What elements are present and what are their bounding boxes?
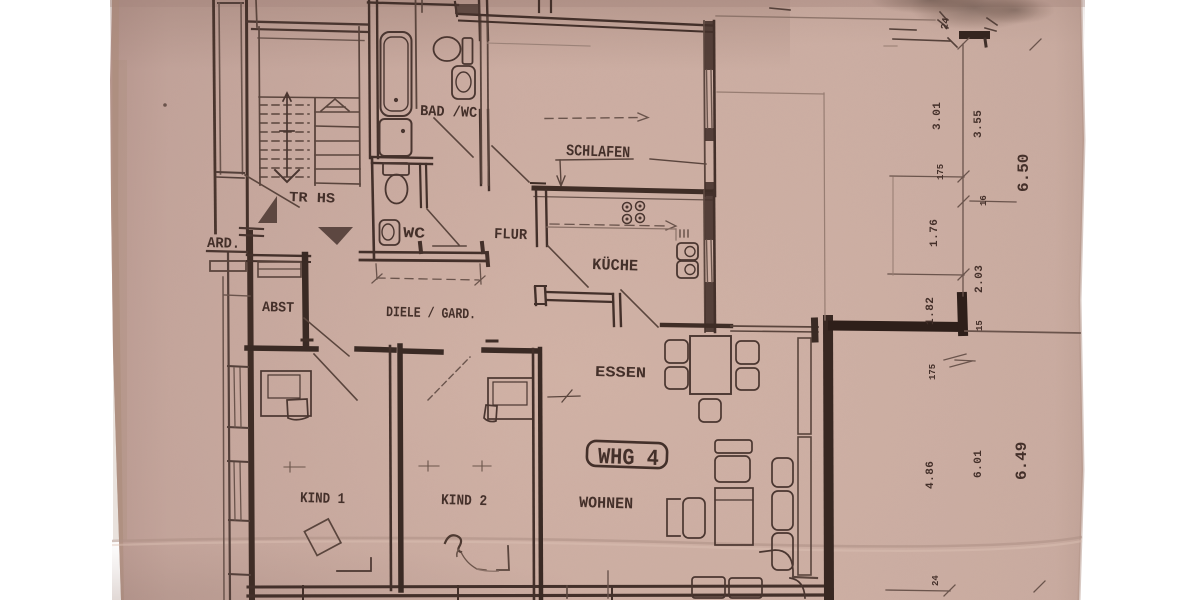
svg-text:KÜCHE: KÜCHE <box>592 255 639 276</box>
svg-text:15: 15 <box>975 320 985 331</box>
svg-text:3.55: 3.55 <box>973 110 985 138</box>
svg-text:2.03: 2.03 <box>974 265 986 293</box>
svg-text:ABST: ABST <box>262 300 295 317</box>
svg-text:3.01: 3.01 <box>932 102 944 130</box>
svg-text:6.01: 6.01 <box>973 450 985 478</box>
svg-text:175: 175 <box>936 164 946 180</box>
svg-text:DIELE / GARD.: DIELE / GARD. <box>386 305 476 323</box>
svg-text:6.50: 6.50 <box>1015 154 1033 192</box>
svg-text:WC: WC <box>403 225 426 243</box>
svg-text:1.82: 1.82 <box>925 297 937 325</box>
svg-text:ESSEN: ESSEN <box>595 364 646 382</box>
svg-text:24: 24 <box>940 17 953 31</box>
svg-text:WOHNEN: WOHNEN <box>579 494 633 513</box>
svg-text:WHG 4: WHG 4 <box>597 444 659 472</box>
svg-text:KIND 2: KIND 2 <box>441 492 487 510</box>
svg-text:24: 24 <box>931 575 941 586</box>
svg-text:4.86: 4.86 <box>925 461 937 489</box>
svg-text:1.76: 1.76 <box>929 219 941 247</box>
svg-text:16: 16 <box>979 195 989 206</box>
svg-text:6.49: 6.49 <box>1013 442 1031 480</box>
svg-text:KIND 1: KIND 1 <box>300 490 345 508</box>
svg-text:FLUR: FLUR <box>494 226 528 244</box>
svg-text:BAD /WC: BAD /WC <box>420 103 478 122</box>
svg-text:175: 175 <box>928 364 938 380</box>
